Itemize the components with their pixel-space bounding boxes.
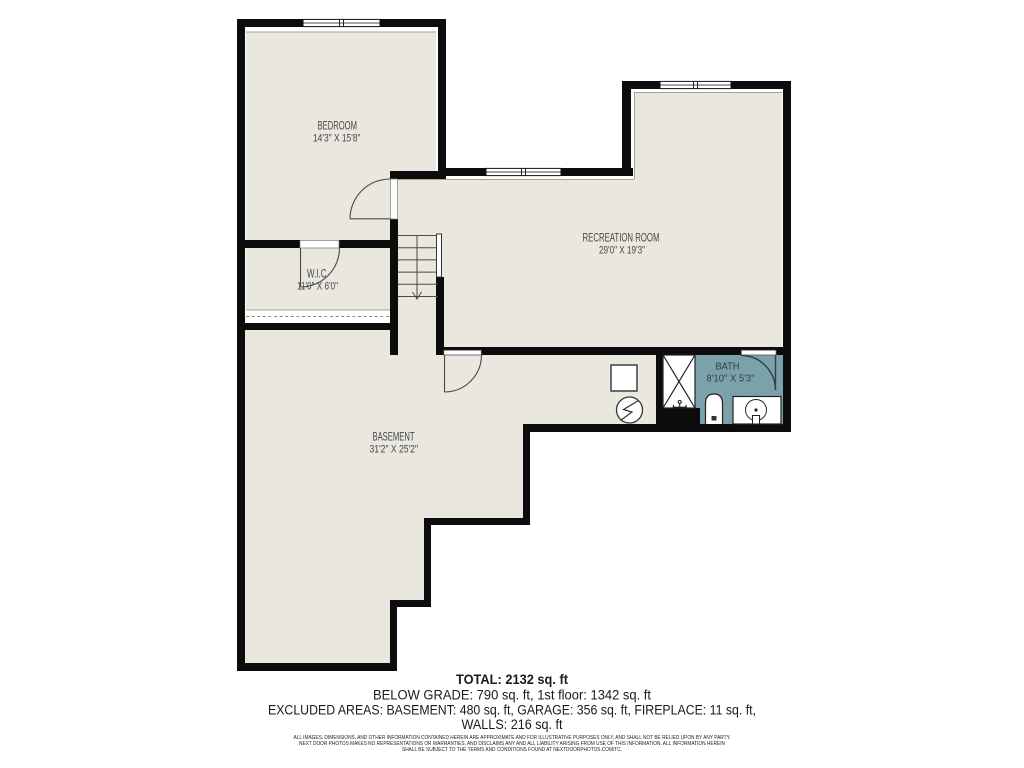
svg-text:SHALL BE SUBJECT TO THE TERMS: SHALL BE SUBJECT TO THE TERMS AND CONDIT… <box>402 747 622 753</box>
svg-text:11'0" X 6'0": 11'0" X 6'0" <box>297 281 338 293</box>
svg-text:EXCLUDED AREAS: BASEMENT: 480: EXCLUDED AREAS: BASEMENT: 480 sq. ft, GA… <box>268 703 756 718</box>
svg-text:31'2" X 25'2": 31'2" X 25'2" <box>370 444 419 456</box>
svg-text:BELOW GRADE: 790 sq. ft, 1st f: BELOW GRADE: 790 sq. ft, 1st floor: 1342… <box>373 688 651 703</box>
svg-text:14'3" X 15'8": 14'3" X 15'8" <box>313 133 361 145</box>
svg-text:W.I.C: W.I.C <box>307 269 327 281</box>
svg-text:TOTAL: 2132 sq. ft: TOTAL: 2132 sq. ft <box>456 672 568 687</box>
svg-text:WALLS: 216 sq. ft: WALLS: 216 sq. ft <box>462 717 563 732</box>
svg-text:BEDROOM: BEDROOM <box>318 121 358 133</box>
svg-text:BATH: BATH <box>716 361 740 373</box>
svg-text:RECREATION ROOM: RECREATION ROOM <box>583 233 660 245</box>
svg-text:BASEMENT: BASEMENT <box>373 432 415 444</box>
svg-text:8'10" X 5'3": 8'10" X 5'3" <box>707 374 755 385</box>
svg-text:29'0" X 19'3": 29'0" X 19'3" <box>599 245 645 257</box>
